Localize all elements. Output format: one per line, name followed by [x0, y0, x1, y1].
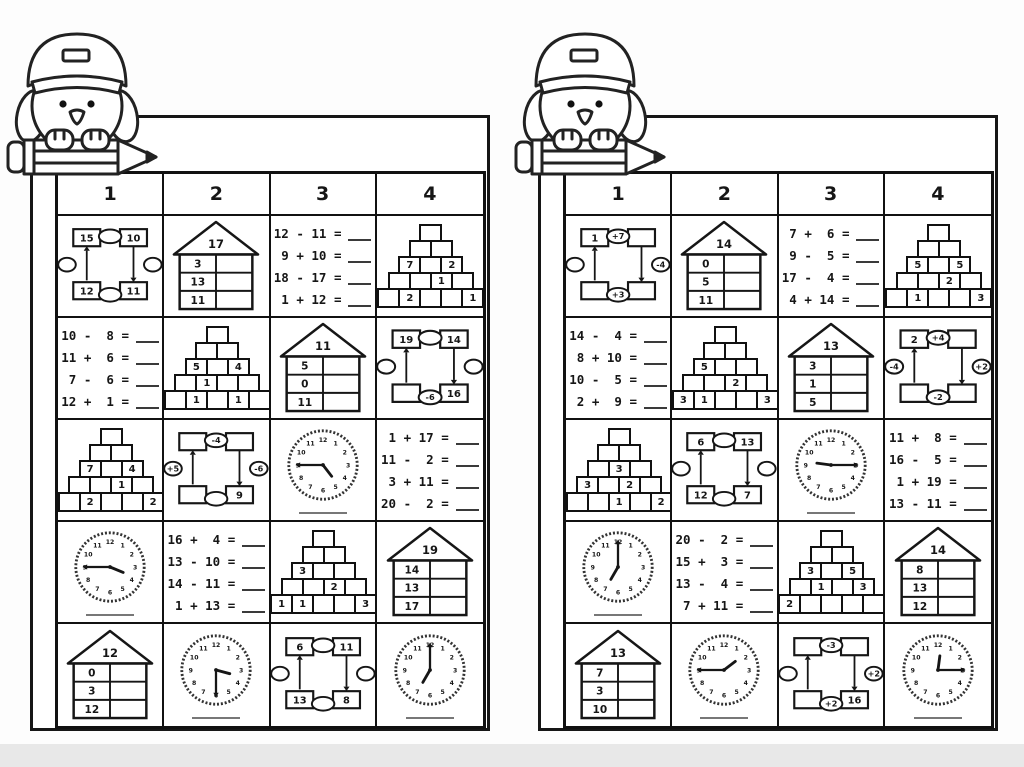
exercise-cell-circle: 1+7-4+3 — [566, 216, 672, 318]
pyramid-box-empty[interactable] — [58, 492, 81, 512]
answer-blank[interactable] — [348, 226, 371, 241]
pyramid-box-empty[interactable] — [714, 390, 737, 410]
clock-face: 123456789101112 — [793, 427, 869, 503]
clock-number: 4 — [744, 679, 748, 686]
clock-face: 123456789101112 — [686, 632, 762, 708]
cycle-oval-empty[interactable] — [144, 258, 162, 272]
clock-center-dot — [321, 463, 325, 467]
clock-number: 9 — [911, 667, 915, 674]
answer-blank[interactable] — [644, 394, 667, 409]
pyramid-box-empty[interactable] — [164, 390, 187, 410]
cycle-operation-value: +7 — [612, 231, 624, 241]
answer-line[interactable] — [86, 614, 134, 616]
clock-exercise: 123456789101112 — [686, 632, 762, 719]
pyramid-box-empty[interactable] — [885, 288, 908, 308]
equation-text: 16 - 5 = — [889, 452, 957, 467]
pyramid-box-empty[interactable] — [799, 594, 822, 614]
cycle-box-empty[interactable] — [180, 486, 207, 503]
cycle-box-empty[interactable] — [180, 433, 207, 450]
house-cell-empty[interactable] — [111, 701, 145, 717]
house-cell-value: 11 — [191, 295, 206, 307]
cycle-oval-empty[interactable] — [357, 667, 375, 681]
house-cell-empty[interactable] — [324, 376, 358, 392]
answer-line[interactable] — [299, 512, 347, 514]
answer-blank[interactable] — [964, 452, 987, 467]
pyramid-box-empty[interactable] — [820, 594, 843, 614]
clock-number: 12 — [720, 642, 729, 649]
exercise-cell-equations: 12 - 11 = 9 + 10 =18 - 17 = 1 + 12 = — [271, 216, 377, 318]
number-cycle: 613712 — [672, 426, 776, 514]
exercise-cell-pyramid: 52313 — [672, 318, 778, 420]
cycle-box-value: 7 — [744, 490, 751, 501]
answer-blank[interactable] — [242, 532, 265, 547]
clock-number: 1 — [629, 542, 633, 549]
answer-line[interactable] — [914, 717, 962, 719]
cycle-box-empty[interactable] — [948, 384, 975, 401]
house-cell-empty[interactable] — [939, 580, 973, 596]
owl-pencil-mascot — [514, 26, 674, 176]
house-cell-empty[interactable] — [832, 394, 866, 410]
pyramid-box: 1 — [185, 390, 208, 410]
clock-number: 8 — [914, 679, 918, 686]
pyramid-box-empty[interactable] — [862, 594, 885, 614]
exercise-grid: 12341+7-4+3140511 7 + 6 = 9 - 5 =17 - 4 … — [563, 171, 994, 729]
cycle-box-empty[interactable] — [794, 691, 821, 708]
clock-number: 10 — [698, 654, 707, 661]
clock-number: 12 — [106, 539, 115, 546]
cycle-box-empty[interactable] — [841, 638, 868, 655]
house-cell-value: 0 — [88, 667, 95, 679]
clock-number: 5 — [333, 484, 337, 491]
clock-number: 3 — [747, 667, 751, 674]
exercise-cell-circle: 191416-6 — [377, 318, 483, 420]
answer-blank[interactable] — [964, 474, 987, 489]
answer-blank[interactable] — [242, 598, 265, 613]
house-cell-empty[interactable] — [217, 274, 251, 290]
house-cell-empty[interactable] — [431, 580, 465, 596]
clock-number: 11 — [814, 440, 823, 447]
clock-number: 10 — [592, 551, 601, 558]
pyramid-box-empty[interactable] — [312, 594, 335, 614]
cycle-oval-empty[interactable] — [99, 288, 121, 302]
column-header: 2 — [164, 174, 270, 216]
cycle-oval-empty[interactable] — [205, 492, 227, 506]
equation-group: 12 - 11 = 9 + 10 =18 - 17 = 1 + 12 = — [274, 222, 372, 310]
house-cell-empty[interactable] — [111, 664, 145, 680]
cycle-box-value: 6 — [698, 437, 705, 448]
equation-row: 9 + 10 = — [274, 248, 372, 263]
number-house: 1731311 — [172, 220, 260, 312]
house-cell-empty[interactable] — [832, 357, 866, 373]
house-cell-empty[interactable] — [619, 664, 653, 680]
cycle-oval-empty[interactable] — [566, 258, 584, 272]
house-roof-value: 12 — [102, 646, 118, 660]
equation-text: 4 + 14 = — [782, 292, 850, 307]
clock-center-dot — [936, 668, 940, 672]
number-cycle: 16-3+2+2 — [779, 631, 883, 719]
answer-blank[interactable] — [136, 328, 159, 343]
cycle-oval-empty[interactable] — [758, 462, 776, 476]
pyramid-box-empty[interactable] — [377, 288, 400, 308]
cycle-oval-empty[interactable] — [713, 434, 735, 448]
clock-number: 6 — [722, 692, 726, 699]
house-cell-empty[interactable] — [431, 561, 465, 577]
pyramid-box-empty[interactable] — [333, 594, 356, 614]
cycle-operation-value: -6 — [255, 464, 264, 474]
exercise-cell-house: 19141317 — [377, 522, 483, 624]
exercise-cell-circle: 16-3+2+2 — [779, 624, 885, 726]
house-cell-value: 17 — [404, 601, 419, 613]
house-cell-empty[interactable] — [431, 598, 465, 614]
clock-number: 11 — [413, 645, 422, 652]
cycle-oval-empty[interactable] — [271, 667, 289, 681]
number-house: 19141317 — [386, 526, 474, 618]
cycle-box-value: 13 — [292, 695, 306, 706]
cycle-operation-value: +5 — [167, 464, 180, 474]
equation-group: 11 + 8 =16 - 5 = 1 + 19 =13 - 11 = — [889, 426, 987, 514]
answer-line[interactable] — [192, 717, 240, 719]
equation-group: 7 + 6 = 9 - 5 =17 - 4 = 4 + 14 = — [782, 222, 880, 310]
clock-exercise: 123456789101112 — [580, 529, 656, 616]
equation-text: 14 - 4 = — [569, 328, 637, 343]
clock-face: 123456789101112 — [392, 632, 468, 708]
pyramid-box-empty[interactable] — [629, 492, 652, 512]
clock-number: 1 — [333, 440, 337, 447]
owl-pencil-mascot — [6, 26, 166, 176]
exercise-cell-pyramid: 35132 — [779, 522, 885, 624]
number-cycle: 611813 — [271, 631, 375, 719]
equation-row: 13 - 4 = — [676, 576, 774, 591]
pyramid-box: 2 — [398, 288, 421, 308]
clock-exercise: 123456789101112 — [178, 632, 254, 719]
clock-face: 123456789101112 — [178, 632, 254, 708]
number-house: 140511 — [680, 220, 768, 312]
pyramid-box: 2 — [142, 492, 165, 512]
clock-number: 12 — [212, 642, 221, 649]
cycle-box-value: 9 — [236, 490, 243, 501]
cycle-box-empty[interactable] — [581, 282, 608, 299]
cycle-operation-value: -6 — [425, 392, 434, 402]
clock-number: 3 — [453, 667, 457, 674]
clock-face: 123456789101112 — [285, 427, 361, 503]
answer-blank[interactable] — [348, 270, 371, 285]
cycle-box-empty[interactable] — [628, 229, 655, 246]
pyramid-row: 13 — [885, 288, 990, 308]
house-cell-value: 13 — [191, 277, 206, 289]
house-cell-empty[interactable] — [324, 357, 358, 373]
answer-blank[interactable] — [750, 598, 773, 613]
cycle-box-empty[interactable] — [900, 384, 927, 401]
equation-row: 13 - 10 = — [168, 554, 266, 569]
equation-row: 14 - 11 = — [168, 576, 266, 591]
answer-line[interactable] — [406, 717, 454, 719]
equation-text: 3 + 11 = — [381, 474, 449, 489]
cycle-box-empty[interactable] — [392, 384, 419, 401]
worksheet-panel-right: 12341+7-4+3140511 7 + 6 = 9 - 5 =17 - 4 … — [538, 115, 998, 731]
cycle-box-empty[interactable] — [628, 282, 655, 299]
pyramid-row: 21 — [377, 288, 482, 308]
pyramid-box-empty[interactable] — [587, 492, 610, 512]
answer-blank[interactable] — [856, 270, 879, 285]
answer-line[interactable] — [807, 512, 855, 514]
exercise-cell-clock: 123456789101112 — [164, 624, 270, 726]
answer-blank[interactable] — [644, 372, 667, 387]
cycle-box-empty[interactable] — [794, 638, 821, 655]
pyramid-box: 1 — [271, 594, 294, 614]
house-cell-empty[interactable] — [217, 292, 251, 308]
equation-row: 10 - 8 = — [61, 328, 159, 343]
equation-row: 4 + 14 = — [782, 292, 880, 307]
answer-blank[interactable] — [136, 350, 159, 365]
answer-blank[interactable] — [964, 496, 987, 511]
equation-row: 7 - 6 = — [61, 372, 159, 387]
clock-face: 123456789101112 — [900, 632, 976, 708]
cycle-oval-empty[interactable] — [377, 360, 395, 374]
equation-group: 14 - 4 = 8 + 10 =10 - 5 = 2 + 9 = — [569, 324, 667, 412]
answer-blank[interactable] — [750, 532, 773, 547]
answer-blank[interactable] — [750, 554, 773, 569]
exercise-cell-pyramid: 33212 — [566, 420, 672, 522]
answer-line[interactable] — [594, 614, 642, 616]
number-pyramid: 32113 — [271, 530, 376, 614]
cycle-oval-empty[interactable] — [713, 492, 735, 506]
equation-row: 18 - 17 = — [274, 270, 372, 285]
answer-blank[interactable] — [750, 576, 773, 591]
house-cell-value: 12 — [912, 601, 927, 613]
pyramid-box-empty[interactable] — [100, 492, 123, 512]
answer-blank[interactable] — [456, 474, 479, 489]
house-roof-value: 19 — [422, 543, 438, 557]
pyramid-box-empty[interactable] — [206, 390, 229, 410]
answer-blank[interactable] — [644, 350, 667, 365]
house-cell-empty[interactable] — [939, 561, 973, 577]
equation-text: 1 + 19 = — [889, 474, 957, 489]
cycle-oval-empty[interactable] — [311, 697, 333, 711]
equation-text: 7 + 6 = — [782, 226, 850, 241]
equation-text: 14 - 11 = — [168, 576, 236, 591]
clock-number: 8 — [192, 679, 196, 686]
house-cell-empty[interactable] — [619, 683, 653, 699]
cycle-oval-empty[interactable] — [779, 667, 797, 681]
answer-blank[interactable] — [136, 372, 159, 387]
equation-row: 12 - 11 = — [274, 226, 372, 241]
column-header: 4 — [377, 174, 483, 216]
cycle-oval-empty[interactable] — [464, 360, 482, 374]
number-pyramid: 33212 — [566, 428, 671, 512]
cycle-box-value: 11 — [339, 642, 353, 653]
clock-number: 10 — [805, 449, 814, 456]
answer-blank[interactable] — [136, 394, 159, 409]
equation-row: 11 - 2 = — [381, 452, 479, 467]
cycle-operation-value: -4 — [656, 260, 665, 270]
answer-blank[interactable] — [964, 430, 987, 445]
pyramid-box-empty[interactable] — [927, 288, 950, 308]
exercise-cell-pyramid: 55213 — [885, 216, 991, 318]
clock-number: 4 — [958, 679, 962, 686]
answer-blank[interactable] — [856, 292, 879, 307]
exercise-cell-equations: 10 - 8 =11 + 6 = 7 - 6 =12 + 1 = — [58, 318, 164, 420]
clock-number: 9 — [189, 667, 193, 674]
house-cell-empty[interactable] — [725, 255, 759, 271]
house-roof-value: 13 — [610, 646, 626, 660]
clock-number: 8 — [700, 679, 704, 686]
cycle-box-value: 11 — [127, 286, 141, 297]
cycle-box-empty[interactable] — [948, 330, 975, 347]
pyramid-box-empty[interactable] — [248, 390, 271, 410]
pyramid-box: 2 — [79, 492, 102, 512]
house-roof-value: 17 — [208, 237, 224, 251]
exercise-cell-house: 137310 — [566, 624, 672, 726]
house-cell-value: 3 — [195, 258, 202, 270]
answer-blank[interactable] — [456, 496, 479, 511]
house-cell-value: 13 — [404, 583, 419, 595]
clock-number: 8 — [406, 679, 410, 686]
house-cell-empty[interactable] — [725, 292, 759, 308]
answer-blank[interactable] — [348, 292, 371, 307]
hour-hand — [938, 655, 940, 669]
exercise-cell-clock: 123456789101112 — [672, 624, 778, 726]
pyramid-box: 1 — [291, 594, 314, 614]
clock-number: 7 — [308, 484, 312, 491]
equation-row: 16 + 4 = — [168, 532, 266, 547]
house-cell-value: 10 — [593, 704, 608, 716]
equation-row: 20 - 2 = — [381, 496, 479, 511]
equation-text: 17 - 4 = — [782, 270, 850, 285]
number-pyramid: 72121 — [377, 224, 482, 308]
equation-row: 1 + 12 = — [274, 292, 372, 307]
equation-text: 11 + 8 = — [889, 430, 957, 445]
cycle-oval-empty[interactable] — [99, 230, 121, 244]
clock-center-dot — [722, 668, 726, 672]
clock-number: 12 — [826, 437, 835, 444]
clock-number: 8 — [594, 576, 598, 583]
clock-number: 8 — [299, 474, 303, 481]
answer-blank[interactable] — [348, 248, 371, 263]
clock-number: 7 — [95, 586, 99, 593]
number-cycle: 15101112 — [58, 222, 162, 310]
house-cell-empty[interactable] — [217, 255, 251, 271]
house-cell-empty[interactable] — [725, 274, 759, 290]
pyramid-row: 12 — [566, 492, 671, 512]
house-cell-value: 8 — [916, 564, 923, 576]
cycle-box-value: 8 — [343, 695, 350, 706]
cycle-operation-value: +3 — [612, 290, 624, 300]
equation-group: 20 - 2 =15 + 3 =13 - 4 = 7 + 11 = — [676, 528, 774, 616]
cycle-oval-empty[interactable] — [418, 331, 441, 345]
house-cell-empty[interactable] — [619, 701, 653, 717]
clock-number: 1 — [948, 645, 952, 652]
number-cycle: 9-4-6+5 — [164, 426, 268, 514]
cycle-box-value: 16 — [847, 695, 861, 706]
equation-text: 11 + 6 = — [61, 350, 129, 365]
equation-group: 1 + 17 =11 - 2 = 3 + 11 =20 - 2 = — [381, 426, 479, 514]
house-cell-value: 11 — [297, 397, 312, 409]
equation-text: 13 - 11 = — [889, 496, 957, 511]
house-cell-value: 3 — [809, 360, 816, 372]
pyramid-box-empty[interactable] — [948, 288, 971, 308]
column-header: 1 — [58, 174, 164, 216]
cycle-box-empty[interactable] — [226, 433, 253, 450]
clock-number: 7 — [710, 689, 714, 696]
clock-number: 4 — [450, 679, 454, 686]
pyramid-box-empty[interactable] — [841, 594, 864, 614]
house-cell-value: 3 — [88, 686, 95, 698]
house-cell-value: 7 — [596, 667, 603, 679]
clock-number: 3 — [133, 564, 137, 571]
house-cell-empty[interactable] — [832, 376, 866, 392]
clock-number: 5 — [227, 689, 231, 696]
house-cell-value: 5 — [703, 277, 710, 289]
house-cell-empty[interactable] — [324, 394, 358, 410]
exercise-cell-circle: 611813 — [271, 624, 377, 726]
equation-row: 10 - 5 = — [569, 372, 667, 387]
exercise-cell-house: 115011 — [271, 318, 377, 420]
clock-number: 2 — [958, 654, 962, 661]
exercise-cell-house: 120312 — [58, 624, 164, 726]
cycle-oval-empty[interactable] — [311, 639, 333, 653]
equation-row: 20 - 2 = — [676, 532, 774, 547]
answer-line[interactable] — [700, 717, 748, 719]
cycle-oval-empty[interactable] — [58, 258, 76, 272]
clock-number: 5 — [735, 689, 739, 696]
equation-text: 18 - 17 = — [274, 270, 342, 285]
answer-blank[interactable] — [242, 554, 265, 569]
house-cell-empty[interactable] — [111, 683, 145, 699]
column-header: 3 — [271, 174, 377, 216]
house-cell-empty[interactable] — [939, 598, 973, 614]
clock-number: 7 — [202, 689, 206, 696]
pyramid-box: 3 — [756, 390, 779, 410]
cycle-oval-empty[interactable] — [672, 462, 690, 476]
answer-blank[interactable] — [644, 328, 667, 343]
answer-blank[interactable] — [456, 430, 479, 445]
answer-blank[interactable] — [242, 576, 265, 591]
clock-exercise: 123456789101112 — [72, 529, 148, 616]
clock-number: 10 — [297, 449, 306, 456]
cycle-box-value: 6 — [296, 642, 303, 653]
clock-number: 10 — [84, 551, 93, 558]
pyramid-box-empty[interactable] — [735, 390, 758, 410]
clock-number: 4 — [342, 474, 346, 481]
equation-text: 12 - 11 = — [274, 226, 342, 241]
pyramid-box-empty[interactable] — [440, 288, 463, 308]
answer-blank[interactable] — [456, 452, 479, 467]
clock-number: 2 — [236, 654, 240, 661]
exercise-cell-equations: 7 + 6 = 9 - 5 =17 - 4 = 4 + 14 = — [779, 216, 885, 318]
exercise-cell-pyramid: 54111 — [164, 318, 270, 420]
exercise-cell-circle: 2+4+2-2-4 — [885, 318, 991, 420]
pyramid-box: 2 — [650, 492, 673, 512]
clock-face: 123456789101112 — [72, 529, 148, 605]
equation-text: 1 + 12 = — [274, 292, 342, 307]
pyramid-box-empty[interactable] — [419, 288, 442, 308]
pyramid-box: 1 — [906, 288, 929, 308]
pyramid-box-empty[interactable] — [121, 492, 144, 512]
equation-row: 16 - 5 = — [889, 452, 987, 467]
clock-number: 8 — [86, 576, 90, 583]
number-house: 13315 — [787, 322, 875, 414]
answer-blank[interactable] — [856, 226, 879, 241]
answer-blank[interactable] — [856, 248, 879, 263]
pyramid-row: 11 — [164, 390, 269, 410]
pyramid-box-empty[interactable] — [566, 492, 589, 512]
clock-number: 9 — [403, 667, 407, 674]
clock-exercise: 123456789101112 — [793, 427, 869, 514]
column-header: 1 — [566, 174, 672, 216]
equation-text: 20 - 2 = — [381, 496, 449, 511]
cycle-box-value: 12 — [80, 286, 94, 297]
cycle-box-value: 10 — [127, 233, 141, 244]
